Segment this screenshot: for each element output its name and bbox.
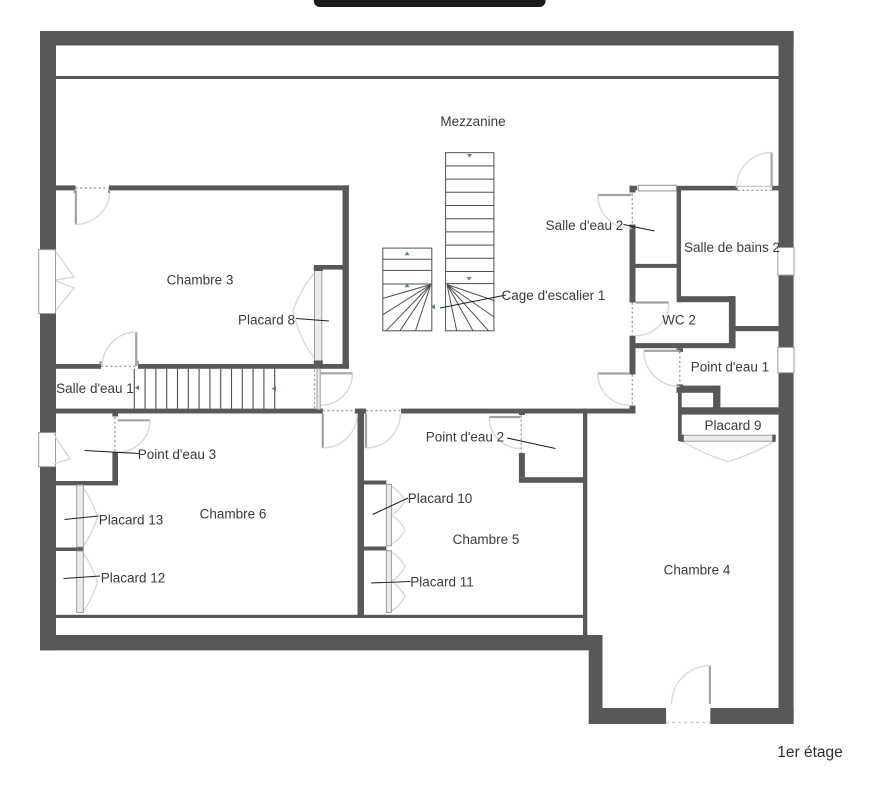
svg-text:Salle d'eau 2: Salle d'eau 2: [546, 218, 624, 233]
svg-text:Mezzanine: Mezzanine: [440, 114, 505, 129]
svg-text:Placard 12: Placard 12: [101, 571, 166, 586]
svg-text:Chambre 5: Chambre 5: [453, 532, 520, 547]
svg-text:Point d'eau 3: Point d'eau 3: [138, 447, 216, 462]
svg-text:Chambre 4: Chambre 4: [664, 563, 731, 578]
svg-text:Salle de bains 2: Salle de bains 2: [684, 240, 780, 255]
svg-text:Chambre 3: Chambre 3: [167, 273, 234, 288]
svg-text:Placard 9: Placard 9: [704, 418, 761, 433]
svg-text:Salle d'eau 1: Salle d'eau 1: [56, 381, 134, 396]
svg-text:Placard 10: Placard 10: [408, 491, 473, 506]
svg-text:Chambre 6: Chambre 6: [200, 507, 267, 522]
svg-text:Placard 13: Placard 13: [99, 513, 164, 528]
svg-text:Placard 11: Placard 11: [410, 575, 474, 590]
svg-text:Placard 8: Placard 8: [238, 313, 295, 328]
svg-text:WC 2: WC 2: [662, 313, 696, 328]
svg-text:Point d'eau 1: Point d'eau 1: [691, 360, 769, 375]
svg-text:Point d'eau 2: Point d'eau 2: [426, 430, 504, 445]
svg-text:Cage d'escalier 1: Cage d'escalier 1: [502, 288, 606, 303]
svg-text:1er étage: 1er étage: [777, 744, 843, 761]
